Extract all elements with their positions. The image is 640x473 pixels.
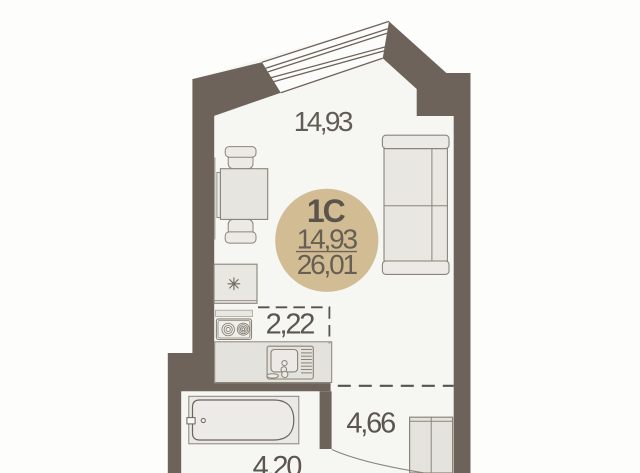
svg-text:4,20: 4,20 — [253, 451, 302, 473]
svg-text:14,93: 14,93 — [294, 106, 353, 137]
svg-text:4,66: 4,66 — [346, 407, 395, 439]
svg-text:26,01: 26,01 — [297, 249, 358, 280]
svg-text:2,22: 2,22 — [266, 308, 315, 340]
